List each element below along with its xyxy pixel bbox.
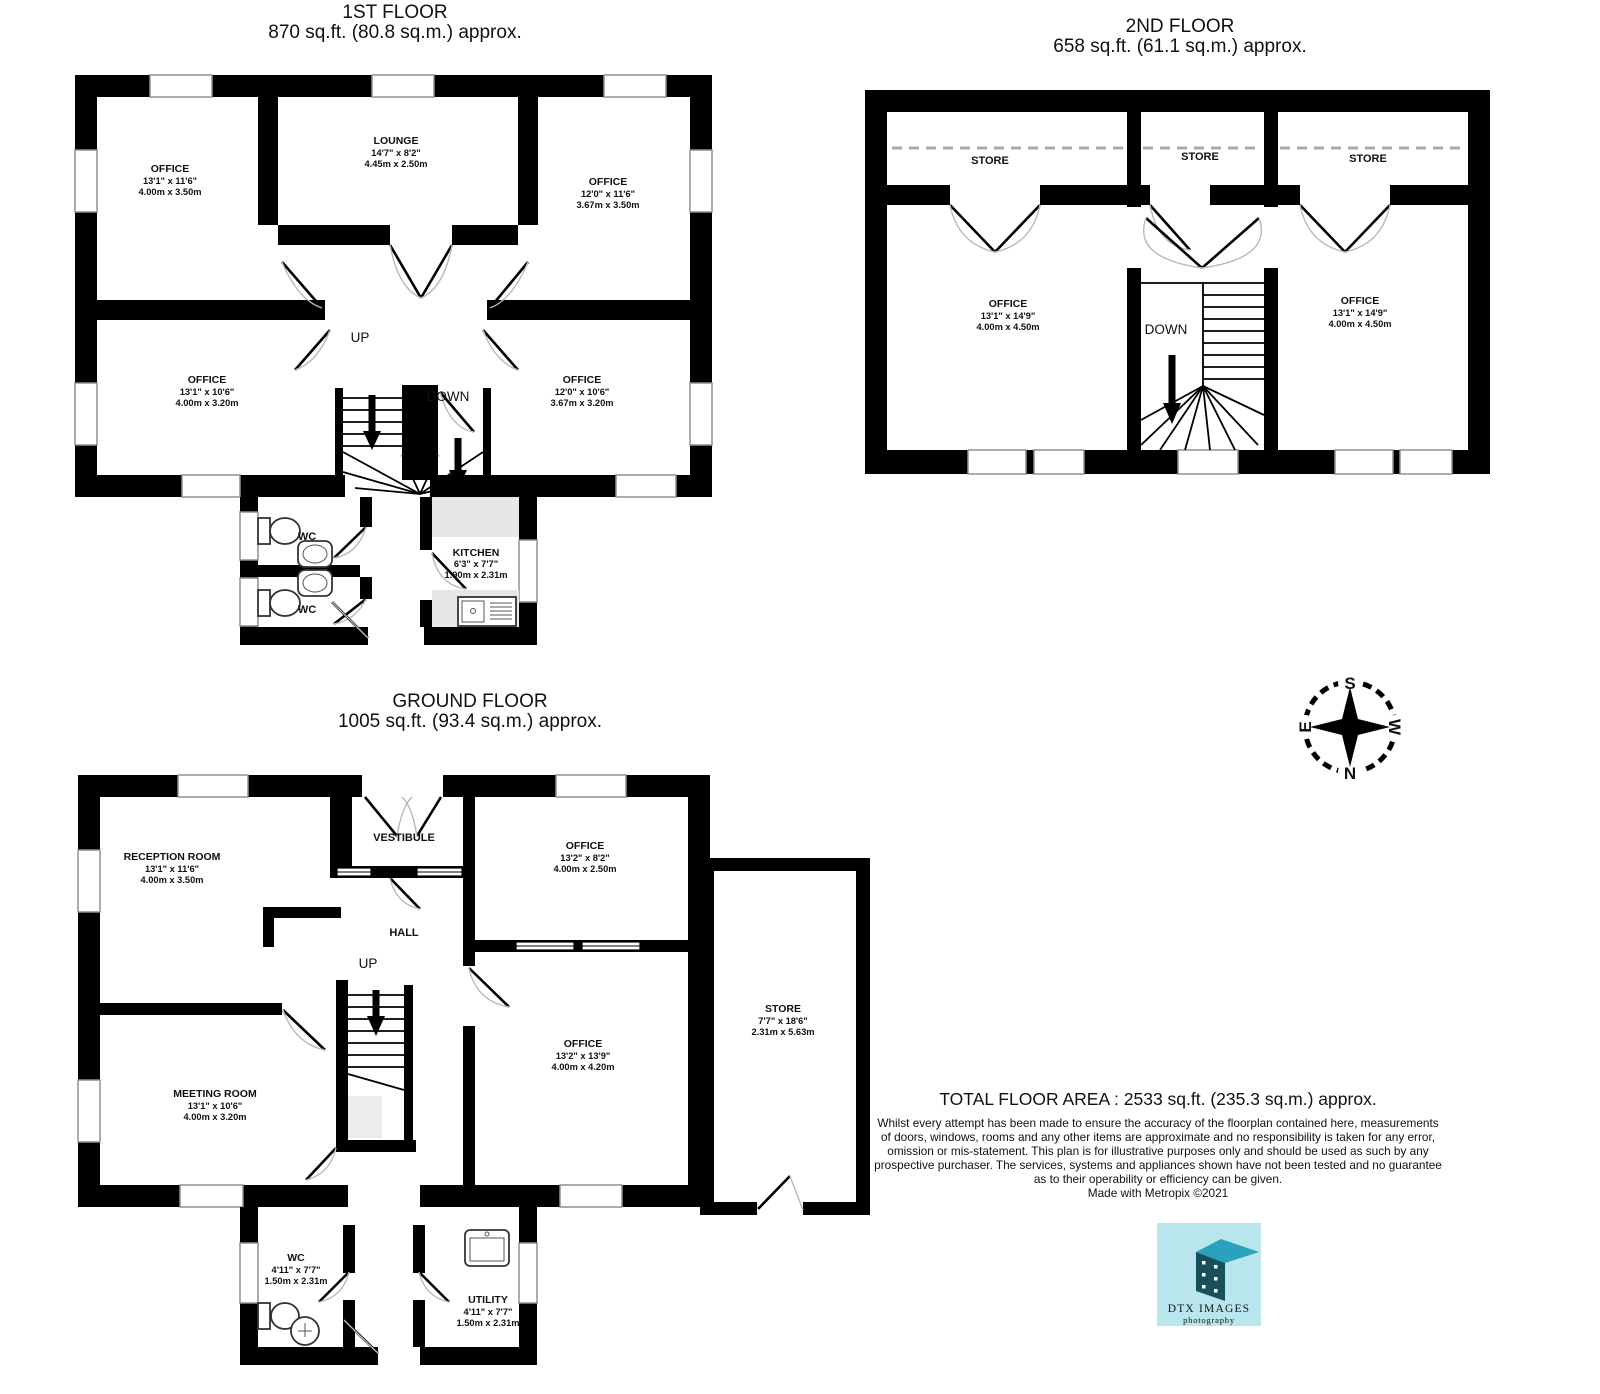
window <box>968 450 1026 474</box>
ground-floor-area: 1005 sq.ft. (93.4 sq.m.) approx. <box>338 711 602 732</box>
up-label: UP <box>359 956 378 971</box>
window <box>182 475 240 497</box>
disclaimer-line: Whilst every attempt has been made to en… <box>877 1116 1438 1130</box>
room-label-office-tl: OFFICE 13'1" x 11'6" 4.00m x 3.50m <box>138 163 201 197</box>
metropix-credit: Made with Metropix ©2021 <box>1088 1186 1229 1200</box>
svg-text:KITCHEN: KITCHEN <box>453 547 500 559</box>
logo-title: DTX IMAGES <box>1168 1303 1251 1315</box>
window <box>240 512 258 560</box>
svg-text:1.50m x 2.31m: 1.50m x 2.31m <box>456 1318 519 1328</box>
room-label-reception: RECEPTION ROOM 13'1" x 11'6" 4.00m x 3.5… <box>124 851 221 885</box>
svg-text:UTILITY: UTILITY <box>468 1294 508 1306</box>
svg-text:4.00m x 3.50m: 4.00m x 3.50m <box>138 187 201 197</box>
svg-text:12'0" x 11'6": 12'0" x 11'6" <box>581 189 635 199</box>
room-label-kitchen: KITCHEN 6'3" x 7'7" 1.90m x 2.31m <box>444 547 507 580</box>
window <box>690 383 712 445</box>
svg-text:7'7" x 18'6": 7'7" x 18'6" <box>758 1016 807 1026</box>
svg-text:12'0" x 10'6": 12'0" x 10'6" <box>555 387 610 397</box>
window <box>1400 450 1452 474</box>
summary-block: TOTAL FLOOR AREA : 2533 sq.ft. (235.3 sq… <box>874 1089 1442 1200</box>
svg-text:4.45m x 2.50m: 4.45m x 2.50m <box>364 159 427 169</box>
svg-text:MEETING ROOM: MEETING ROOM <box>173 1088 257 1100</box>
disclaimer-line: omission or mis-statement. This plan is … <box>887 1144 1428 1158</box>
svg-text:4.00m x 4.50m: 4.00m x 4.50m <box>976 322 1039 332</box>
stair-winders <box>1141 386 1264 450</box>
sink-icon <box>298 541 332 567</box>
disclaimer-line: as to their operability or efficiency ca… <box>1034 1172 1282 1186</box>
store-label: STORE <box>1181 151 1219 163</box>
utility-sink-icon <box>465 1230 509 1266</box>
svg-text:OFFICE: OFFICE <box>563 374 602 386</box>
room-label-office-left: OFFICE 13'1" x 14'9" 4.00m x 4.50m <box>976 298 1039 332</box>
svg-text:RECEPTION ROOM: RECEPTION ROOM <box>124 851 221 863</box>
dtx-images-logo: DTX IMAGES photography <box>1157 1223 1261 1326</box>
svg-text:4.00m x 3.20m: 4.00m x 3.20m <box>183 1112 246 1122</box>
svg-text:1.50m x 2.31m: 1.50m x 2.31m <box>264 1276 327 1286</box>
down-label: DOWN <box>1145 322 1188 337</box>
kitchen-sink-icon <box>458 597 516 626</box>
window <box>556 775 626 797</box>
wc-label: WC <box>298 604 316 616</box>
window <box>616 475 676 497</box>
window <box>1178 450 1238 474</box>
svg-text:4'11" x 7'7": 4'11" x 7'7" <box>464 1307 513 1317</box>
window <box>240 1243 258 1303</box>
svg-text:WC: WC <box>287 1252 305 1264</box>
svg-text:OFFICE: OFFICE <box>1341 295 1380 307</box>
wc-label: WC <box>298 531 316 543</box>
first-floor-plan: 1ST FLOOR 870 sq.ft. (80.8 sq.m.) approx… <box>75 2 712 645</box>
room-label-store: STORE 7'7" x 18'6" 2.31m x 5.63m <box>751 1003 814 1037</box>
svg-text:4.00m x 3.50m: 4.00m x 3.50m <box>140 875 203 885</box>
stairs-up-arrow <box>367 990 385 1036</box>
toilet-icon <box>258 518 300 544</box>
svg-text:13'1" x 11'6": 13'1" x 11'6" <box>145 864 199 874</box>
room-label-meeting: MEETING ROOM 13'1" x 10'6" 4.00m x 3.20m <box>173 1088 257 1122</box>
window <box>519 1243 537 1303</box>
window <box>75 150 97 212</box>
svg-text:4.00m x 3.20m: 4.00m x 3.20m <box>175 398 238 408</box>
logo-subtitle: photography <box>1183 1315 1235 1325</box>
svg-text:2.31m x 5.63m: 2.31m x 5.63m <box>751 1027 814 1037</box>
window <box>78 1080 100 1142</box>
room-label-office-bottom: OFFICE 13'2" x 13'9" 4.00m x 4.20m <box>551 1038 614 1072</box>
svg-text:OFFICE: OFFICE <box>989 298 1028 310</box>
room-label-wc: WC 4'11" x 7'7" 1.50m x 2.31m <box>264 1252 327 1286</box>
svg-text:OFFICE: OFFICE <box>564 1038 603 1050</box>
svg-text:4.00m x 4.20m: 4.00m x 4.20m <box>551 1062 614 1072</box>
toilet-icon <box>258 590 300 616</box>
stair-landing-mat <box>348 1096 382 1138</box>
vestibule-label: VESTIBULE <box>373 832 435 844</box>
floorplan-page: 1ST FLOOR 870 sq.ft. (80.8 sq.m.) approx… <box>0 0 1600 1394</box>
window <box>150 75 212 97</box>
disclaimer-line: of doors, windows, rooms and any other i… <box>881 1130 1435 1144</box>
sink-icon <box>291 1317 319 1345</box>
window <box>1335 450 1393 474</box>
room-label-office-tr: OFFICE 12'0" x 11'6" 3.67m x 3.50m <box>576 176 639 210</box>
compass-west: W <box>1385 719 1404 736</box>
svg-text:3.67m x 3.50m: 3.67m x 3.50m <box>576 200 639 210</box>
window <box>240 578 258 626</box>
svg-text:13'1" x 10'6": 13'1" x 10'6" <box>188 1101 243 1111</box>
compass-south: S <box>1344 674 1355 693</box>
svg-text:STORE: STORE <box>765 1003 801 1015</box>
window <box>78 850 100 912</box>
second-floor-area: 658 sq.ft. (61.1 sq.m.) approx. <box>1053 36 1306 57</box>
compass-icon: S N W E <box>1293 670 1407 784</box>
svg-text:4.00m x 2.50m: 4.00m x 2.50m <box>553 864 616 874</box>
second-floor-title: 2ND FLOOR <box>1126 16 1235 37</box>
store-label: STORE <box>971 155 1009 167</box>
svg-text:OFFICE: OFFICE <box>188 374 227 386</box>
up-label: UP <box>351 330 370 345</box>
first-floor-area: 870 sq.ft. (80.8 sq.m.) approx. <box>268 22 521 43</box>
disclaimer-line: prospective purchaser. The services, sys… <box>874 1158 1442 1172</box>
total-floor-area: TOTAL FLOOR AREA : 2533 sq.ft. (235.3 sq… <box>939 1089 1376 1109</box>
window <box>180 1185 243 1207</box>
room-label-office-bl: OFFICE 13'1" x 10'6" 4.00m x 3.20m <box>175 374 238 408</box>
svg-text:13'2" x 13'9": 13'2" x 13'9" <box>556 1051 611 1061</box>
svg-text:13'1" x 14'9": 13'1" x 14'9" <box>981 311 1036 321</box>
compass-east: E <box>1296 721 1315 732</box>
ground-floor-title: GROUND FLOOR <box>392 691 547 712</box>
svg-text:1.90m x 2.31m: 1.90m x 2.31m <box>444 570 507 580</box>
room-label-office-top: OFFICE 13'2" x 8'2" 4.00m x 2.50m <box>553 840 616 874</box>
window <box>690 150 712 212</box>
window <box>178 775 248 797</box>
sink-icon <box>298 570 332 596</box>
down-label: DOWN <box>427 389 470 404</box>
svg-text:OFFICE: OFFICE <box>566 840 605 852</box>
svg-text:OFFICE: OFFICE <box>589 176 628 188</box>
svg-text:13'2" x 8'2": 13'2" x 8'2" <box>560 853 609 863</box>
stairs-down-arrow <box>1163 355 1181 424</box>
svg-text:13'1" x 10'6": 13'1" x 10'6" <box>180 387 235 397</box>
window <box>519 540 537 602</box>
window <box>372 75 434 97</box>
svg-text:3.67m x 3.20m: 3.67m x 3.20m <box>550 398 613 408</box>
ground-floor-plan: GROUND FLOOR 1005 sq.ft. (93.4 sq.m.) ap… <box>78 691 870 1365</box>
compass-north: N <box>1344 764 1356 783</box>
room-label-lounge: LOUNGE 14'7" x 8'2" 4.45m x 2.50m <box>364 135 427 169</box>
svg-text:4.00m x 4.50m: 4.00m x 4.50m <box>1328 319 1391 329</box>
svg-text:LOUNGE: LOUNGE <box>374 135 419 147</box>
svg-text:OFFICE: OFFICE <box>151 163 190 175</box>
room-label-office-br: OFFICE 12'0" x 10'6" 3.67m x 3.20m <box>550 374 613 408</box>
svg-text:4'11" x 7'7": 4'11" x 7'7" <box>272 1265 321 1275</box>
window <box>560 1185 622 1207</box>
second-floor-plan: 2ND FLOOR 658 sq.ft. (61.1 sq.m.) approx… <box>865 16 1490 474</box>
svg-text:6'3" x 7'7": 6'3" x 7'7" <box>454 559 498 569</box>
store-label: STORE <box>1349 153 1387 165</box>
room-label-utility: UTILITY 4'11" x 7'7" 1.50m x 2.31m <box>456 1294 519 1328</box>
hall-label: HALL <box>389 927 419 939</box>
floorplan-image: 1ST FLOOR 870 sq.ft. (80.8 sq.m.) approx… <box>0 0 1600 1394</box>
room-label-office-right: OFFICE 13'1" x 14'9" 4.00m x 4.50m <box>1328 295 1391 329</box>
svg-text:14'7" x 8'2": 14'7" x 8'2" <box>371 148 420 158</box>
svg-text:13'1" x 11'6": 13'1" x 11'6" <box>143 176 197 186</box>
window <box>1034 450 1084 474</box>
first-floor-title: 1ST FLOOR <box>342 2 447 23</box>
svg-text:13'1" x 14'9": 13'1" x 14'9" <box>1333 308 1388 318</box>
window <box>604 75 666 97</box>
window <box>75 383 97 445</box>
